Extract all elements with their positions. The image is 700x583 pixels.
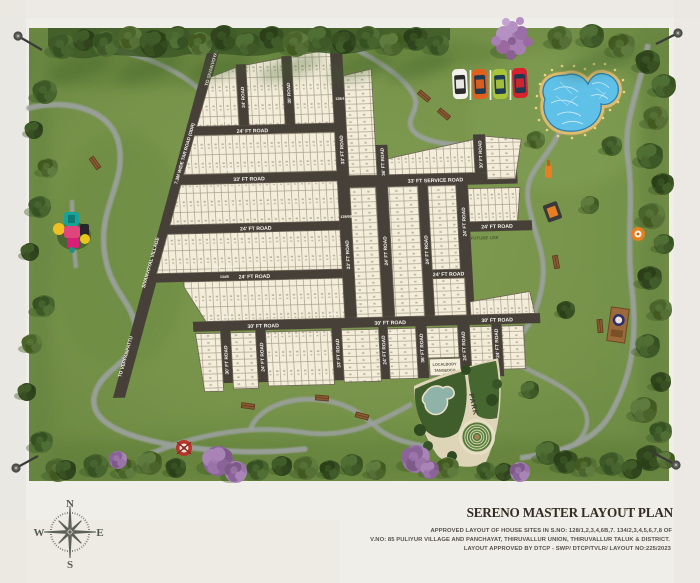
svg-text:N: N <box>66 498 74 510</box>
svg-text:128/7: 128/7 <box>391 331 400 335</box>
svg-text:V.NO: 85 PULIYUR VILLAGE AND P: V.NO: 85 PULIYUR VILLAGE AND PANCHAYAT, … <box>370 537 670 543</box>
svg-text:24' FT ROAD: 24' FT ROAD <box>240 226 272 233</box>
svg-text:30' FT ROAD: 30' FT ROAD <box>374 320 406 327</box>
svg-text:128/6B: 128/6B <box>340 215 352 219</box>
svg-text:30' FT ROAD: 30' FT ROAD <box>481 317 513 324</box>
svg-text:30' FT ROAD: 30' FT ROAD <box>247 323 279 330</box>
svg-text:24' FT ROAD: 24' FT ROAD <box>481 224 513 231</box>
svg-text:128/3: 128/3 <box>224 168 233 172</box>
svg-text:134/2: 134/2 <box>211 266 220 270</box>
svg-text:W: W <box>34 527 45 539</box>
svg-text:134/5: 134/5 <box>220 275 229 279</box>
svg-text:S: S <box>67 559 73 571</box>
svg-text:E: E <box>96 527 103 539</box>
svg-text:24' FT ROAD: 24' FT ROAD <box>237 128 269 135</box>
svg-text:FUTURE USE: FUTURE USE <box>470 235 498 241</box>
svg-text:128/4: 128/4 <box>335 97 344 101</box>
svg-text:SERENO MASTER LAYOUT PLAN: SERENO MASTER LAYOUT PLAN <box>467 505 674 520</box>
svg-text:APPROVED LAYOUT OF HOUSE SITES: APPROVED LAYOUT OF HOUSE SITES IN S.NO: … <box>431 528 673 534</box>
svg-text:134/6: 134/6 <box>222 315 231 319</box>
svg-text:128/2: 128/2 <box>221 119 230 123</box>
svg-text:24' FT ROAD: 24' FT ROAD <box>239 274 271 281</box>
svg-text:134/7: 134/7 <box>330 312 339 316</box>
svg-text:134/3: 134/3 <box>225 266 234 270</box>
svg-text:LOCALBODY: LOCALBODY <box>432 362 457 367</box>
svg-text:LAYOUT APPROVED BY DTCP - SWP/: LAYOUT APPROVED BY DTCP - SWP/ DTCP/TVLR… <box>464 546 672 552</box>
svg-text:33' FT ROAD: 33' FT ROAD <box>233 176 265 183</box>
svg-text:24' FT ROAD: 24' FT ROAD <box>433 271 465 278</box>
